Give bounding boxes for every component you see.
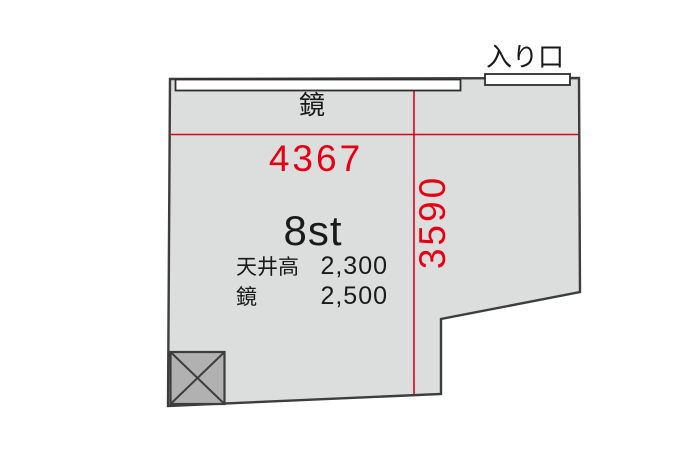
room-specs: 天井高 2,300 鏡 2,500	[236, 251, 388, 311]
mirror-strip	[176, 80, 461, 91]
mirror-width-label: 鏡	[236, 281, 257, 311]
ceiling-height-label: 天井高	[236, 251, 299, 281]
spec-row-ceiling: 天井高 2,300	[236, 251, 388, 281]
mirror-label: 鏡	[262, 92, 362, 118]
width-dimension-value: 4367	[260, 140, 372, 177]
spec-row-mirror: 鏡 2,500	[236, 281, 388, 311]
room-name: 8st	[281, 210, 345, 252]
ceiling-height-value: 2,300	[320, 252, 388, 281]
pillar	[171, 352, 225, 404]
room-outline	[168, 78, 580, 406]
floorplan-drawing	[0, 0, 700, 465]
entrance-label: 入り口	[486, 44, 564, 70]
depth-dimension-value: 3590	[414, 162, 452, 282]
entrance-door	[485, 74, 570, 85]
floorplan-canvas: 入り口 鏡 4367 3590 8st 天井高 2,300 鏡 2,500	[0, 0, 700, 465]
mirror-width-value: 2,500	[320, 282, 388, 311]
